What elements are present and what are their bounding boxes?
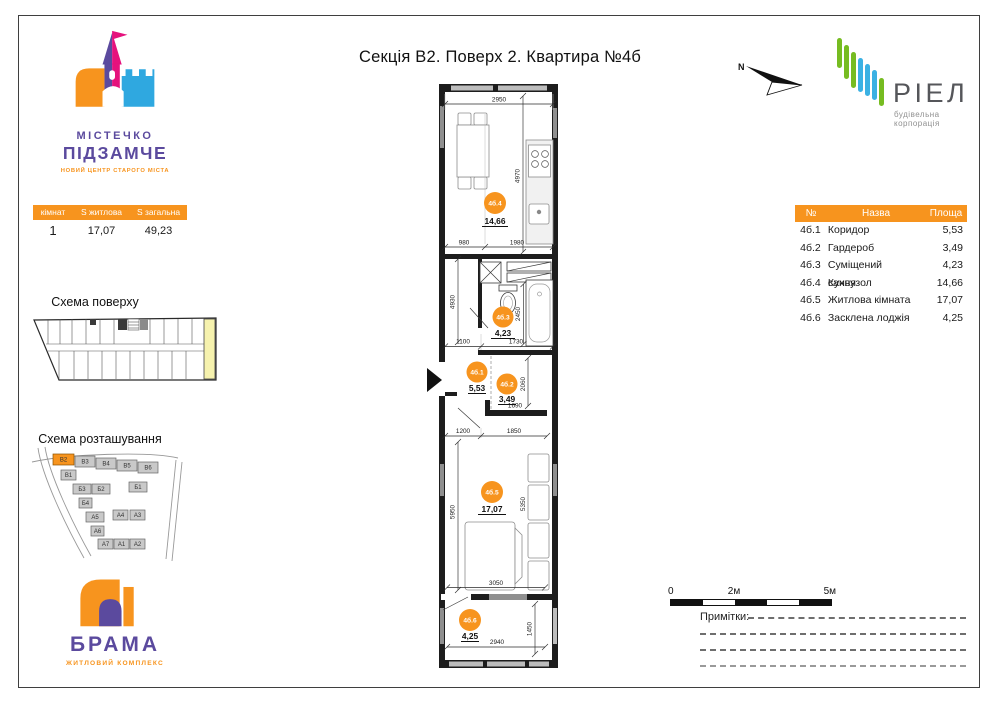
north-label: N: [738, 62, 745, 72]
dim-label: 4930: [450, 294, 457, 309]
brama-tagline: ЖИТЛОВИЙ КОМПЛЕКС: [66, 660, 164, 667]
table-row: 4б.2 Гардероб 3,49: [795, 240, 967, 258]
row-area: 17,07: [922, 292, 967, 310]
logo-text-line2: ПІДЗАМЧЕ: [63, 143, 167, 164]
row-name: Засклена лоджія: [826, 310, 923, 328]
room-area: 17,07: [482, 504, 503, 514]
page-title: Секція В2. Поверх 2. Квартира №4б: [280, 48, 720, 67]
room-number: 4б.1: [470, 369, 484, 377]
site-block-label: А4: [117, 513, 125, 519]
dim-label: 1980: [510, 240, 525, 247]
stats-header-total-area: S загальна: [130, 205, 187, 220]
room-marker-corridor: 4б.1 5,53: [467, 362, 488, 394]
col-area: Площа: [925, 205, 967, 222]
row-num: 4б.5: [795, 292, 826, 310]
room-area: 3,49: [499, 394, 516, 404]
floor-scheme-map: [30, 311, 220, 385]
room-area: 4,23: [495, 328, 512, 338]
room-number: 4б.2: [500, 381, 514, 389]
table-row: 4б.5 Житлова кімната 17,07: [795, 292, 967, 310]
room-number: 4б.4: [488, 200, 502, 208]
site-block-label: В4: [102, 462, 110, 468]
room-number: 4б.6: [463, 617, 477, 625]
room-area: 5,53: [469, 383, 486, 393]
row-num: 4б.1: [795, 222, 826, 240]
site-block-label: А7: [102, 542, 110, 548]
notes-label: Примітки:: [700, 611, 749, 623]
room-marker-living: 4б.5 17,07: [478, 481, 506, 515]
stats-header-rooms: кімнат: [33, 205, 73, 220]
notes-line: [700, 649, 966, 651]
room-marker-loggia: 4б.6 4,25: [459, 609, 481, 642]
scale-label-2m: 2м: [722, 586, 746, 597]
dim-label: 1850: [507, 428, 522, 435]
stats-value-rooms: 1: [33, 220, 73, 242]
north-arrow: N: [730, 52, 810, 100]
dim-label: 4970: [515, 168, 522, 183]
row-area: 14,66: [922, 275, 967, 293]
row-name: Житлова кімната: [826, 292, 923, 310]
notes-line: [748, 617, 966, 619]
castle-logo-icon: [60, 28, 170, 124]
site-block-label: В6: [144, 466, 152, 472]
dim-label: 2940: [490, 639, 505, 646]
row-name: Гардероб: [826, 240, 923, 258]
site-block-label: А1: [118, 542, 126, 548]
developer-logo: МІСТЕЧКО ПІДЗАМЧЕ НОВИЙ ЦЕНТР СТАРОГО МІ…: [40, 28, 190, 174]
room-area: 4,25: [462, 631, 479, 641]
site-block-label: В1: [65, 473, 73, 479]
apartment-stats-table: кімнат S житлова S загальна 1 17,07 49,2…: [33, 205, 187, 242]
riel-name: РІЕЛ: [893, 78, 968, 109]
dim-label: 1100: [456, 339, 470, 346]
riel-bars-icon: [835, 36, 889, 120]
stats-header-row: кімнат S житлова S загальна: [33, 205, 187, 220]
logo-tagline: НОВИЙ ЦЕНТР СТАРОГО МІСТА: [61, 168, 170, 174]
logo-text-line1: МІСТЕЧКО: [77, 130, 154, 142]
site-block-label: А5: [91, 515, 99, 521]
site-block-label: В5: [123, 464, 131, 470]
dim-label: 5950: [450, 504, 457, 519]
row-num: 4б.3: [795, 257, 826, 275]
dim-label: 3050: [489, 580, 504, 587]
site-block-label: А3: [134, 513, 142, 519]
row-num: 4б.2: [795, 240, 826, 258]
col-number: №: [795, 205, 827, 222]
riel-logo: РІЕЛ будівельна корпорація: [835, 36, 975, 120]
dim-label: 2950: [492, 97, 507, 104]
dim-label: 5350: [520, 496, 527, 511]
row-num: 4б.6: [795, 310, 826, 328]
brama-name: БРАМА: [70, 633, 160, 657]
riel-tagline: будівельна корпорація: [894, 110, 975, 128]
notes-line: [700, 665, 966, 667]
site-scheme-title: Схема розташування: [30, 432, 170, 446]
site-block-label: В3: [81, 460, 89, 466]
table-row: 4б.6 Засклена лоджія 4,25: [795, 310, 967, 328]
rooms-table: № Назва Площа 4б.1 Коридор 5,53 4б.2 Гар…: [795, 205, 967, 327]
scale-bar: 0 2м 5м: [670, 586, 832, 610]
col-name: Назва: [827, 205, 925, 222]
site-block-label: Б4: [82, 501, 90, 507]
brama-logo: БРАМА ЖИТЛОВИЙ КОМПЛЕКС: [40, 572, 190, 667]
row-name: Кухня: [826, 275, 923, 293]
page: Секція В2. Поверх 2. Квартира №4б МІСТЕЧ…: [0, 0, 1000, 706]
highlighted-unit: [204, 319, 215, 379]
site-block-label: Б3: [78, 487, 86, 493]
room-area: 14,66: [485, 216, 506, 226]
scale-label-0: 0: [668, 586, 674, 597]
room-number: 4б.5: [485, 489, 499, 497]
row-area: 4,25: [922, 310, 967, 328]
row-num: 4б.4: [795, 275, 826, 293]
stats-value-living-area: 17,07: [73, 220, 130, 242]
site-block-label: Б2: [97, 487, 105, 493]
stats-value-total-area: 49,23: [130, 220, 187, 242]
scale-label-5m: 5м: [824, 586, 836, 597]
scale-bar-segments: [670, 599, 832, 606]
dim-label: 1450: [527, 621, 534, 636]
stats-header-living-area: S житлова: [73, 205, 130, 220]
dim-label: 2060: [520, 376, 527, 391]
site-block-label: Б1: [134, 485, 142, 491]
dim-label: 1200: [456, 428, 471, 435]
site-buildings: В2 В3 В4 В5 В6 В1 Б3 Б2 Б1 Б4 А5 А4 А3 А…: [53, 454, 158, 549]
row-area: 5,53: [922, 222, 967, 240]
room-marker-wardrobe: 4б.2 3,49: [497, 374, 518, 405]
table-row: 4б.1 Коридор 5,53: [795, 222, 967, 240]
rooms-table-header: № Назва Площа: [795, 205, 967, 222]
row-name: Суміщений санвузол: [826, 257, 923, 275]
row-area: 4,23: [922, 257, 967, 275]
site-block-label: В2: [60, 458, 68, 464]
dim-label: 980: [459, 240, 470, 247]
room-marker-bathroom: 4б.3 4,23: [491, 307, 515, 339]
floor-plan: 2950 4970 980 1980 4930 2450 1100 1730 2…: [425, 84, 575, 670]
table-row: 4б.4 Кухня 14,66: [795, 275, 967, 293]
notes-line: [700, 633, 966, 635]
living-furniture: [465, 454, 549, 590]
table-row: 4б.3 Суміщений санвузол 4,23: [795, 257, 967, 275]
site-block-label: А6: [94, 529, 102, 535]
site-scheme-map: В2 В3 В4 В5 В6 В1 Б3 Б2 Б1 Б4 А5 А4 А3 А…: [28, 446, 196, 561]
room-marker-kitchen: 4б.4 14,66: [482, 192, 508, 227]
row-name: Коридор: [826, 222, 923, 240]
brama-gate-icon: [70, 572, 160, 630]
stats-value-row: 1 17,07 49,23: [33, 220, 187, 242]
row-area: 3,49: [922, 240, 967, 258]
dim-label: 1730: [509, 339, 524, 346]
dim-label: 2450: [515, 306, 522, 321]
site-block-label: А2: [134, 542, 142, 548]
living-door-swing: [458, 408, 480, 428]
room-number: 4б.3: [496, 314, 510, 322]
floor-scheme-title: Схема поверху: [35, 295, 155, 309]
